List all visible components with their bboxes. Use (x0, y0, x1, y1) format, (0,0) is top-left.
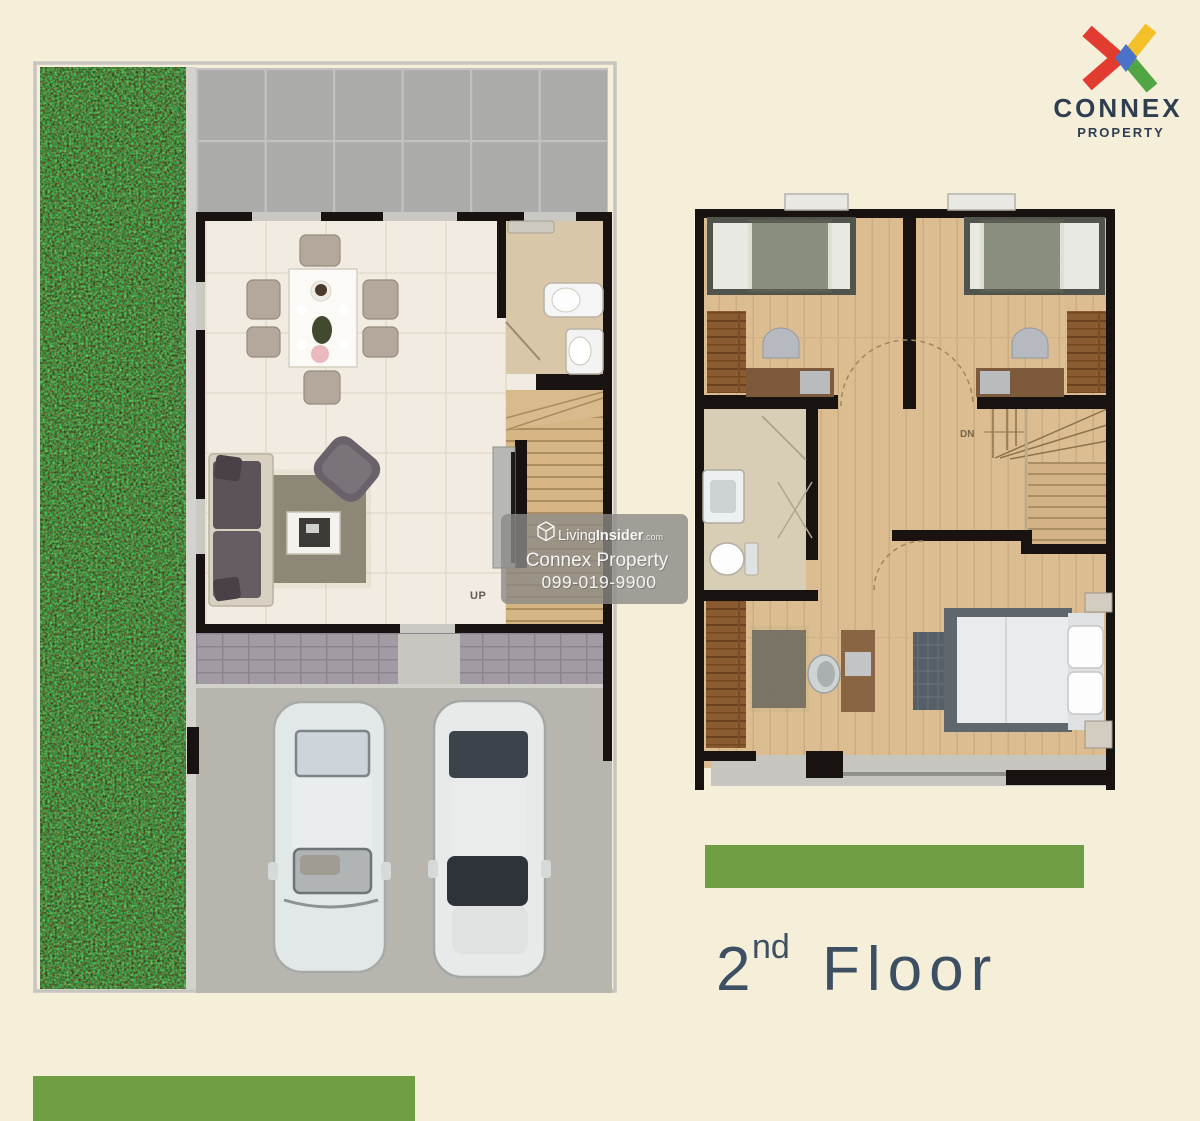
svg-text:099-019-9900: 099-019-9900 (542, 572, 657, 592)
svg-text:nd: nd (752, 928, 790, 966)
svg-text:PROPERTY: PROPERTY (1077, 125, 1165, 140)
svg-text:DN: DN (960, 429, 974, 440)
svg-text:CONNEX: CONNEX (1053, 93, 1182, 123)
svg-text:Connex Property: Connex Property (526, 550, 669, 571)
svg-text:Floor: Floor (822, 935, 998, 1004)
svg-text:UP: UP (470, 590, 486, 602)
svg-text:2: 2 (716, 935, 750, 1004)
